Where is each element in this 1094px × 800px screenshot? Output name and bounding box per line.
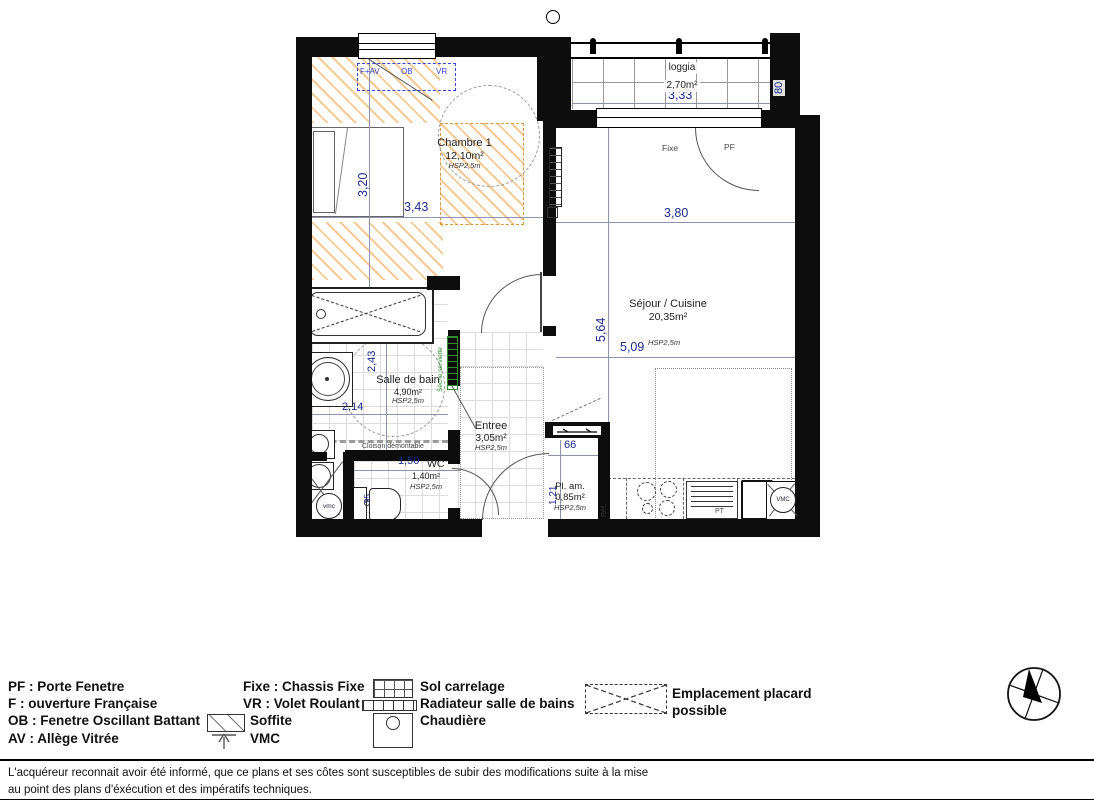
fridge-label: Réf.: [601, 504, 608, 517]
chambre-hsp: HSP2,5m: [412, 162, 517, 171]
wall-chambre-door-stub: [543, 326, 556, 336]
cooktop-burner-2: [660, 481, 677, 498]
sejour-label: Séjour / Cuisine 20,35m²: [612, 298, 724, 323]
slide-arrow-icon: [553, 426, 601, 435]
legend-fixe: Fixe : Chassis Fixe: [243, 679, 365, 694]
dim-chambre-width: 3,43: [404, 200, 428, 214]
sejour-hsp: HSP2,5m: [648, 338, 680, 347]
wc-hsp: HSP2,5m: [410, 482, 442, 491]
chambre-area: 12,10m²: [412, 150, 517, 162]
entree-name: Entree: [452, 420, 530, 433]
chaudiere-swatch-circle: [386, 716, 400, 730]
kitchen-divider-1: [626, 478, 627, 519]
pf-label: PF: [724, 142, 735, 152]
wall-sejour-top-right: [760, 110, 795, 128]
legend-abbrev-av: AV : Allège Vitrée: [8, 731, 119, 746]
window-label-ob: OB: [401, 67, 413, 76]
vmc-small-label: vmc: [323, 503, 335, 510]
loggia-post-3: [762, 38, 768, 54]
legend-soffite: Soffite: [250, 713, 292, 728]
dim-wc-depth: 95: [363, 494, 372, 503]
sink-drainer: [686, 481, 738, 519]
sejour-name: Séjour / Cuisine: [612, 298, 724, 311]
dimline-3-43: [312, 217, 543, 218]
cloison-label: Cloison démontable: [362, 443, 424, 450]
loggia-threshold-window: [596, 108, 762, 128]
placard-hsp: HSP2,5m: [540, 504, 600, 513]
dim-wc-width: 1,50: [398, 455, 419, 467]
chambre-window: [358, 33, 436, 59]
north-arrow: [1023, 669, 1042, 703]
legend-abbrev-f: F : ouverture Française: [8, 696, 157, 711]
loggia-name: loggia: [667, 62, 698, 74]
wall-corner-block: [537, 37, 571, 121]
sol-carrelage-swatch: [373, 679, 413, 698]
legend-abbrev-ob: OB : Fenetre Oscillant Battant: [8, 713, 200, 728]
legend-chaudiere: Chaudière: [420, 713, 486, 728]
vmc-extractor-small: vmc: [316, 493, 342, 519]
dim-placard-width: 66: [564, 439, 576, 451]
vmc-legend-icon: [210, 730, 238, 750]
legend-radiateur: Radiateur salle de bains: [420, 696, 575, 711]
sdb-hsp: HSP2,5m: [362, 397, 454, 406]
wall-sejour-top-left: [556, 110, 598, 128]
wall-vmcroom-right: [343, 452, 354, 519]
chambre-door-leaf: [540, 272, 542, 332]
kitchen-divider-2: [683, 478, 684, 519]
sdb-name: Salle de bain: [362, 374, 454, 387]
dimline-5-09: [556, 357, 795, 358]
cooktop-burner-3: [642, 503, 653, 514]
radiateur-swatch: [362, 700, 417, 711]
loggia-post-2: [676, 38, 682, 54]
loggia-post-1: [590, 38, 596, 54]
chaudiere-swatch: [373, 713, 413, 748]
sdb-label: Salle de bain 4,90m² HSP2,5m: [362, 374, 454, 406]
legend-vmc: VMC: [250, 731, 280, 746]
vmc-extractor-kitchen: VMC: [770, 487, 796, 513]
disclaimer-text: L'acquéreur reconnait avoir été informé,…: [8, 765, 663, 798]
dimline-3-80: [556, 222, 795, 223]
chambre-door-arc: [481, 274, 542, 333]
legend-abbrev-pf: PF : Porte Fenetre: [8, 679, 124, 694]
chambre-name: Chambre 1: [412, 137, 517, 150]
wall-loggia-right: [770, 33, 800, 121]
washbasin-drain: [325, 377, 329, 381]
legend-vr: VR : Volet Roulant: [243, 696, 360, 711]
vmc-kitchen-label: VMC: [776, 497, 789, 503]
wc-name: WC: [427, 458, 445, 470]
dim-loggia-depth: 80: [773, 80, 785, 96]
wall-bottom-left: [296, 519, 482, 537]
dim-sdb-width: 2,14: [342, 401, 363, 413]
bed-pillow: [313, 131, 335, 213]
sejour-area: 20,35m²: [612, 311, 724, 323]
sejour-radiator-valve: [547, 207, 558, 218]
cooktop-burner-4: [659, 500, 675, 516]
wall-bottom-right: [548, 519, 820, 537]
fixe-label: Fixe: [662, 143, 678, 153]
dim-sejour-width: 5,09: [620, 340, 644, 354]
placard-swatch: [585, 684, 667, 714]
dimline-3-33: [572, 103, 790, 104]
north-compass: [1003, 664, 1065, 726]
entree-label: Entree 3,05m² HSP2,5m: [452, 420, 530, 453]
dim-sejour-depth: 5,64: [594, 318, 608, 342]
wall-wc-right-bottom: [448, 508, 460, 520]
sejour-radiator: [549, 147, 562, 207]
bathtub-drain: [316, 309, 326, 319]
window-label-vr: VR: [436, 67, 447, 76]
kitchen-counter-edge: [598, 478, 795, 479]
dim-sejour-width-top: 3,80: [664, 206, 688, 220]
toilet-bowl: [369, 488, 401, 521]
palier-door-dashed-leaf: [552, 398, 601, 421]
legend-sol-carrelage: Sol carrelage: [420, 679, 505, 694]
cooktop-burner-1: [637, 482, 656, 501]
dimline-2-14: [312, 414, 448, 415]
chambre-turning-circle: [438, 85, 540, 187]
wall-vmcroom-top: [296, 452, 327, 461]
sejour-pf-door-arc: [695, 128, 759, 191]
entree-hsp: HSP2,5m: [452, 444, 530, 453]
placard-swatch-cross: [586, 685, 666, 713]
wc-area: 1,40m²: [412, 471, 440, 481]
disclaimer-bar: L'acquéreur reconnait avoir été informé,…: [0, 759, 1094, 800]
wall-right: [795, 115, 820, 537]
placard-label: Pl. am. 0,85m² HSP2,5m: [540, 482, 600, 512]
loggia-label: loggia 2,70m²: [638, 57, 726, 94]
washing-machine-drum: [309, 434, 329, 454]
facade-marker-circle: [546, 10, 560, 24]
wall-left: [296, 37, 312, 537]
worktop-label: PT: [715, 508, 724, 515]
floor-plan-page: F+AV OB VR vmc: [0, 0, 1094, 800]
loggia-area: 2,70m²: [664, 80, 699, 92]
dimline-1-50: [354, 470, 460, 471]
wall-chambre-sdb: [427, 276, 460, 290]
legend-placard: Emplacement placard possible: [672, 686, 817, 720]
placard-slide-slot: [553, 426, 601, 435]
soffite-hatch-bottom: [312, 222, 443, 280]
dim-chambre-depth: 3,20: [356, 173, 370, 197]
chambre-label: Chambre 1 12,10m² HSP2,5m: [412, 137, 517, 170]
dim-sdb-depth: 2,43: [366, 351, 378, 372]
window-label-f-av: F+AV: [360, 67, 380, 76]
